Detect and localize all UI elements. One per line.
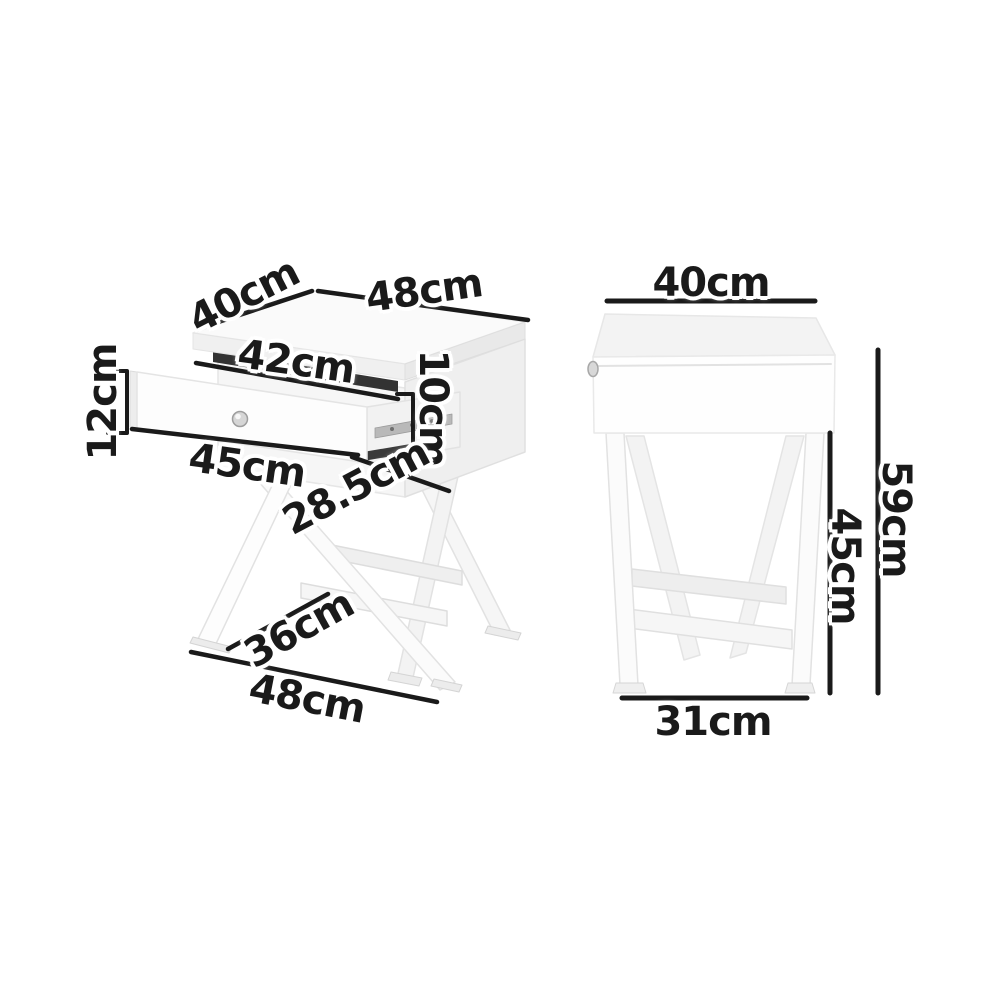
dim-label-drawer-front-height: 12cm <box>80 343 126 460</box>
dim-label-total-height: 59cm <box>873 460 919 577</box>
dim-label-feet-width: 31cm <box>654 699 771 745</box>
outer-leg-left <box>606 433 638 685</box>
drawer-left-edge <box>130 371 137 428</box>
tabletop-top-face <box>593 314 835 357</box>
dim-label-leg-height: 45cm <box>822 507 868 624</box>
foot-pad <box>785 683 815 693</box>
elevation-view-table <box>588 301 878 698</box>
drawer-knob <box>588 362 598 377</box>
stretcher-lower <box>620 608 792 649</box>
drawer-knob-highlight <box>235 414 241 420</box>
foot-pad <box>613 683 646 693</box>
furniture-diagram-graphics <box>0 0 1000 1000</box>
drawer-knob <box>233 412 248 427</box>
product-dimension-diagram: 40cm 48cm 42cm 12cm 10cm 45cm 28.5cm 36c… <box>0 0 1000 1000</box>
dim-label-front-top-width: 40cm <box>652 260 769 306</box>
rail-screw <box>390 427 394 431</box>
outer-leg-right <box>792 433 824 685</box>
